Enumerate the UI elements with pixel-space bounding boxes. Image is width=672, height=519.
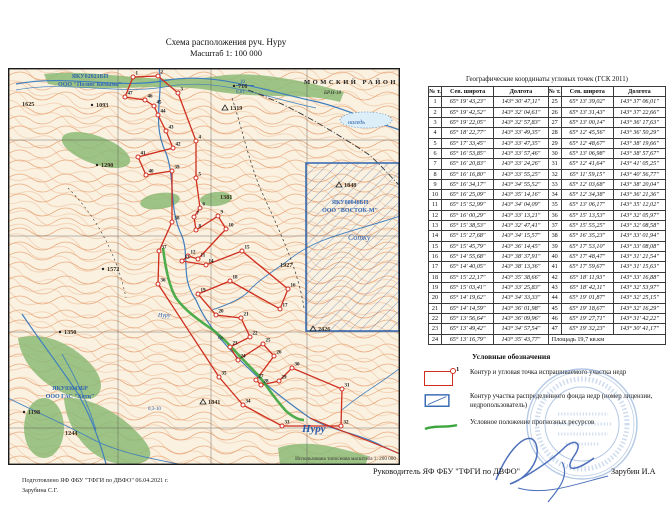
map-corner-point (239, 316, 243, 320)
latitude-cell: 65° 15' 22,17" (442, 272, 494, 282)
point-number-cell: 38 (548, 231, 561, 241)
map-corner-point-number: 14 (209, 260, 215, 265)
scale-label: Масштаб 1: 100 000 (96, 48, 356, 59)
map-corner-point (131, 75, 135, 79)
latitude-cell: 65° 12' 41,64" (561, 159, 613, 169)
elevation-label: 1927 (280, 262, 292, 269)
col-longitude: Долгота (613, 87, 665, 97)
latitude-cell: 65° 15' 38,53" (442, 221, 494, 231)
map-corner-point-number: 46 (148, 95, 154, 100)
elevation-label: 1198 (28, 409, 40, 416)
map-corner-point (241, 403, 245, 407)
map-corner-point (286, 287, 290, 291)
point-number-cell: 21 (429, 303, 442, 313)
longitude-cell: 143° 40' 56,77" (613, 169, 665, 179)
longitude-cell: 143° 36' 14,45" (494, 241, 549, 251)
license-number-label: ЯКУ02021БП (72, 74, 109, 80)
map-corner-point (259, 383, 263, 387)
table-row: 2465° 13' 16,79"143° 35' 43,77"Площадь 1… (429, 334, 666, 344)
map-corner-point-number: 13 (185, 256, 191, 261)
table-row: 665° 16' 53,85"143° 33' 57,46"3065° 13' … (429, 148, 666, 158)
elevation-dot-icon (91, 104, 93, 106)
approver-name: Зарубин И.А (611, 467, 656, 476)
latitude-cell: 65° 19' 42,52" (442, 107, 494, 117)
map-corner-point (194, 228, 198, 232)
point-number-cell: 28 (548, 128, 561, 138)
elevation-label: 1093 (96, 102, 108, 109)
longitude-cell: 143° 34' 33,33" (494, 293, 549, 303)
point-number-cell: 7 (429, 159, 442, 169)
point-number-cell: 18 (429, 272, 442, 282)
table-row: 165° 19' 43,23"143° 30' 47,11"2565° 13' … (429, 97, 666, 107)
latitude-cell: 65° 16' 34,17" (442, 179, 494, 189)
point-number-cell: 37 (548, 221, 561, 231)
longitude-cell: 143° 33' 01,94" (613, 231, 665, 241)
latitude-cell: 65° 16' 00,29" (442, 210, 494, 220)
point-number-cell: 31 (548, 159, 561, 169)
approver-title: Руководитель ЯФ ФБУ "ТФГИ по ДВФО" (373, 467, 520, 476)
map-corner-point (339, 424, 343, 428)
latitude-cell: 65° 15' 03,41" (442, 282, 494, 292)
map-label: БР.Н-18 (323, 91, 342, 96)
map-label: наледь (348, 119, 365, 126)
latitude-cell: 65° 14' 19,62" (442, 293, 494, 303)
point-number-cell: 8 (429, 169, 442, 179)
map-corner-point-number: 19 (201, 289, 207, 294)
map-corner-point-number: 16 (291, 284, 297, 289)
table-row: 1465° 15' 27,68"143° 34' 15,57"3865° 16'… (429, 231, 666, 241)
table-row: 265° 19' 42,52"143° 32' 04,61"2665° 13' … (429, 107, 666, 117)
point-number-cell: 1 (429, 97, 442, 107)
elevation-label: 1572 (107, 266, 119, 273)
map-corner-point (278, 307, 282, 311)
map-corner-point-number: 11 (201, 254, 206, 259)
col-point-number: № т. (429, 87, 442, 97)
page-title: Схема расположения руч. Нуру Масштаб 1: … (96, 36, 356, 60)
longitude-cell: 143° 32' 57,83" (494, 117, 549, 127)
elevation-dot-icon (233, 85, 235, 87)
legend-point-number: 1 (456, 366, 459, 373)
coordinates-table-block: Географические координаты угловых точек … (428, 76, 666, 345)
table-row: 2365° 13' 49,42"143° 34' 57,54"4765° 19'… (429, 324, 666, 334)
latitude-cell: 65° 19' 18,67" (561, 303, 613, 313)
map-corner-point (248, 335, 252, 339)
col-latitude: Сев. широта (561, 87, 613, 97)
latitude-cell: 65° 17' 53,10" (561, 241, 613, 251)
map-corner-point-number: 41 (141, 152, 147, 157)
longitude-cell: 143° 36' 50,29" (613, 128, 665, 138)
elevation-dot-icon (96, 164, 98, 166)
map-corner-point (198, 206, 202, 210)
point-number-cell: 39 (548, 241, 561, 251)
longitude-cell: 143° 32' 05,97" (613, 210, 665, 220)
topographic-map: 1234567891011121314151617181920212223242… (8, 68, 400, 465)
map-corner-point-number: 34 (246, 400, 252, 405)
elevation-dot-icon (23, 411, 25, 413)
map-label: Нуру (157, 313, 171, 319)
longitude-cell: 143° 35' 43,77" (494, 334, 549, 344)
latitude-cell: 65° 16' 20,83" (442, 159, 494, 169)
longitude-cell: 143° 32' 53,97" (613, 282, 665, 292)
latitude-cell: 65° 17' 33,45" (442, 138, 494, 148)
latitude-cell: 65° 12' 45,56" (561, 128, 613, 138)
point-number-cell: 9 (429, 179, 442, 189)
latitude-cell: 65° 18' 11,93" (561, 272, 613, 282)
latitude-cell: 65° 12' 48,67" (561, 138, 613, 148)
table-row: 1265° 16' 00,29"143° 33' 13,21"3665° 15'… (429, 210, 666, 220)
map-corner-point (156, 74, 160, 78)
point-number-cell: 45 (548, 303, 561, 313)
table-row: 565° 17' 33,45"143° 33' 47,35"2965° 12' … (429, 138, 666, 148)
latitude-cell: 65° 17' 59,67" (561, 262, 613, 272)
map-corner-point (180, 259, 184, 263)
latitude-cell: 65° 19' 22,05" (442, 117, 494, 127)
map-corner-point (143, 98, 147, 102)
longitude-cell: 143° 34' 15,57" (494, 231, 549, 241)
map-corner-point-number: 38 (175, 217, 181, 222)
longitude-cell: 143° 38' 37,91" (494, 252, 549, 262)
map-corner-point (170, 220, 174, 224)
latitude-cell: 65° 15' 52,99" (442, 200, 494, 210)
point-number-cell: 10 (429, 190, 442, 200)
latitude-cell: 65° 11' 59,15" (561, 169, 613, 179)
map-corner-point-number: 33 (285, 421, 291, 426)
map-label: 0,8Т (236, 90, 245, 95)
map-corner-point-number: 21 (244, 313, 250, 318)
map-corner-point (156, 282, 160, 286)
latitude-cell: 65° 12' 03,68" (561, 179, 613, 189)
map-corner-point (214, 313, 218, 317)
license-holder-label: ООО ГАС "Хотц" (46, 394, 95, 400)
table-title: Географические координаты угловых точек … (428, 76, 666, 83)
map-corner-point (152, 104, 156, 108)
point-number-cell: 33 (548, 179, 561, 189)
latitude-cell: 65° 13' 06,17" (561, 200, 613, 210)
map-corner-point (280, 424, 284, 428)
longitude-cell: 143° 38' 19,66" (613, 138, 665, 148)
map-corner-point (290, 366, 294, 370)
latitude-cell: 65° 15' 13,53" (561, 210, 613, 220)
map-corner-point-number: 17 (283, 304, 289, 309)
point-number-cell: 29 (548, 138, 561, 148)
table-row: 865° 16' 16,80"143° 33' 55,25"3265° 11' … (429, 169, 666, 179)
point-number-cell: 22 (429, 313, 442, 323)
map-corner-point (277, 379, 281, 383)
table-row: 2065° 14' 19,62"143° 34' 33,33"4465° 19'… (429, 293, 666, 303)
latitude-cell: 65° 13' 00,14" (561, 117, 613, 127)
latitude-cell: 65° 13' 16,79" (442, 334, 494, 344)
license-number-label: ЯКУ03043БР (52, 386, 88, 392)
point-number-cell: 40 (548, 252, 561, 262)
point-number-cell: 32 (548, 169, 561, 179)
map-corner-point-number: 28 (264, 380, 270, 385)
point-number-cell: 20 (429, 293, 442, 303)
map-corner-point-number: 15 (245, 246, 251, 251)
longitude-cell: 143° 33' 08,08" (613, 241, 665, 251)
longitude-cell: 143° 34' 04,09" (494, 200, 549, 210)
point-number-cell: 44 (548, 293, 561, 303)
latitude-cell: 65° 16' 53,85" (442, 148, 494, 158)
table-row: 2265° 13' 56,64"143° 36' 09,96"4665° 19'… (429, 313, 666, 323)
map-corner-point (164, 129, 168, 133)
map-corner-point (144, 173, 148, 177)
point-number-cell: 41 (548, 262, 561, 272)
latitude-cell: 65° 15' 45,79" (442, 241, 494, 251)
point-number-cell: 30 (548, 148, 561, 158)
col-point-number: № т. (548, 87, 561, 97)
table-row: 1065° 16' 25,09"143° 35' 14,16"3465° 12'… (429, 190, 666, 200)
table-row: 1565° 15' 45,79"143° 36' 14,45"3965° 17'… (429, 241, 666, 251)
map-corner-point-number: 42 (176, 143, 182, 148)
map-corner-point-number: 44 (161, 110, 167, 115)
map-corner-point-number: 10 (229, 224, 235, 229)
map-corner-point-number: 20 (219, 310, 225, 315)
longitude-cell: 143° 38' 57,67" (613, 148, 665, 158)
elevation-label: 1381 (220, 194, 232, 201)
elevation-label: 1244 (65, 430, 77, 437)
elevation-dot-icon (102, 268, 104, 270)
blue-contour-icon (424, 393, 460, 409)
map-corner-point-number: 23 (233, 342, 239, 347)
map-corner-point (194, 176, 198, 180)
map-corner-point (236, 358, 240, 362)
point-number-cell: 4 (429, 128, 442, 138)
latitude-cell: 65° 19' 43,23" (442, 97, 494, 107)
point-number-cell: 24 (429, 334, 442, 344)
map-corner-point-number: 12 (191, 251, 197, 256)
table-row: 2165° 14' 14,59"143° 36' 01,98"4565° 19'… (429, 303, 666, 313)
col-longitude: Долгота (494, 87, 549, 97)
point-number-cell: 27 (548, 117, 561, 127)
point-number-cell: 36 (548, 210, 561, 220)
point-number-cell: 2 (429, 107, 442, 117)
point-number-cell: 35 (548, 200, 561, 210)
longitude-cell: 143° 35' 38,66" (494, 272, 549, 282)
map-corner-point (176, 91, 180, 95)
map-corner-point (216, 214, 220, 218)
map-corner-point (272, 354, 276, 358)
table-row: 1165° 15' 52,99"143° 34' 04,09"3565° 13'… (429, 200, 666, 210)
longitude-cell: 143° 37' 06,01" (613, 97, 665, 107)
longitude-cell: 143° 32' 47,41" (494, 221, 549, 231)
point-number-cell: 23 (429, 324, 442, 334)
map-corner-point (192, 215, 196, 219)
map-corner-point-number: 45 (157, 101, 163, 106)
latitude-cell: 65° 13' 06,98" (561, 148, 613, 158)
map-corner-point (194, 139, 198, 143)
coordinates-table: № т. Сев. широта Долгота № т. Сев. широт… (428, 86, 666, 345)
longitude-cell: 143° 33' 25,83" (494, 282, 549, 292)
map-corner-point-number: 40 (149, 170, 155, 175)
longitude-cell: 143° 30' 47,11" (494, 97, 549, 107)
map-corner-point (196, 257, 200, 261)
map-source-note: Использована топоснова масштаба 1: 200 0… (295, 455, 396, 462)
map-corner-point (224, 227, 228, 231)
map-corner-point (261, 342, 265, 346)
table-row: 1865° 15' 22,17"143° 35' 38,66"4265° 18'… (429, 272, 666, 282)
elevation-label: 1319 (230, 105, 242, 112)
map-corner-point (228, 279, 232, 283)
map-corner-point-number: 24 (241, 355, 247, 360)
table-row: 1665° 14' 55,68"143° 38' 37,91"4065° 17'… (429, 252, 666, 262)
longitude-cell: 143° 32' 16,29" (613, 303, 665, 313)
map-corner-point (228, 345, 232, 349)
elevation-label: 1841 (208, 399, 220, 406)
point-number-cell: 26 (548, 107, 561, 117)
table-row: 465° 18' 22,77"143° 33' 49,35"2865° 12' … (429, 128, 666, 138)
map-corner-point-number: 43 (169, 126, 175, 131)
latitude-cell: 65° 18' 42,11" (561, 282, 613, 292)
prepared-by-block: Подготовлено ЯФ ФБУ "ТФГИ по ДВФО" 06.04… (22, 476, 168, 495)
map-corner-point-number: 39 (175, 166, 181, 171)
elevation-label: 1290 (101, 162, 113, 169)
longitude-cell: 143° 33' 55,25" (494, 169, 549, 179)
latitude-cell: 65° 13' 56,64" (442, 313, 494, 323)
license-holder-label: ООО "Полюс Колыма" (58, 82, 122, 88)
point-number-cell: 6 (429, 148, 442, 158)
map-corner-point (123, 95, 127, 99)
map-corner-point (156, 113, 160, 117)
longitude-cell: 143° 38' 13,36" (494, 262, 549, 272)
longitude-cell: 143° 36' 17,63" (613, 117, 665, 127)
elevation-label: 1625 (22, 101, 34, 108)
table-row: 1965° 15' 03,41"143° 33' 25,83"4365° 18'… (429, 282, 666, 292)
point-number-cell: 14 (429, 231, 442, 241)
map-corner-point-number: 22 (253, 332, 259, 337)
map-corner-point (170, 169, 174, 173)
latitude-cell: 65° 15' 55,25" (561, 221, 613, 231)
map-corner-point-number: 30 (295, 363, 301, 368)
longitude-cell: 143° 36' 21,36" (613, 190, 665, 200)
point-number-cell: 42 (548, 272, 561, 282)
map-label: 10 (240, 80, 246, 85)
longitude-cell: 143° 32' 25,15" (613, 293, 665, 303)
table-row: 1765° 14' 40,05"143° 38' 13,36"4165° 17'… (429, 262, 666, 272)
point-number-cell: 17 (429, 262, 442, 272)
latitude-cell: 65° 14' 40,05" (442, 262, 494, 272)
point-number-cell: 11 (429, 200, 442, 210)
scheme-title: Схема расположения руч. Нуру (96, 36, 356, 48)
elevation-label: 1848 (344, 182, 356, 189)
latitude-cell: 65° 16' 25,09" (442, 190, 494, 200)
latitude-cell: 65° 14' 14,59" (442, 303, 494, 313)
longitude-cell: 143° 33' 24,26" (494, 159, 549, 169)
latitude-cell: 65° 19' 32,23" (561, 324, 613, 334)
point-number-cell: 34 (548, 190, 561, 200)
map-label: Сотку (348, 233, 371, 242)
longitude-cell: 143° 31' 15,63" (613, 262, 665, 272)
map-corner-point-number: 25 (266, 339, 272, 344)
longitude-cell: 143° 36' 09,96" (494, 313, 549, 323)
point-number-cell: 5 (429, 138, 442, 148)
map-label: МОМСКИЙ РАЙОН (304, 78, 398, 86)
point-number-cell: 3 (429, 117, 442, 127)
longitude-cell: 143° 33' 47,35" (494, 138, 549, 148)
longitude-cell: 143° 31' 21,54" (613, 252, 665, 262)
map-corner-point (340, 387, 344, 391)
elevation-label: 1350 (64, 329, 76, 336)
map-corner-point-number: 36 (161, 279, 167, 284)
longitude-cell: 143° 35' 14,16" (494, 190, 549, 200)
longitude-cell: 143° 31' 42,22" (613, 313, 665, 323)
longitude-cell: 143° 34' 55,52" (494, 179, 549, 189)
point-number-cell: 13 (429, 221, 442, 231)
longitude-cell: 143° 32' 04,61" (494, 107, 549, 117)
map-corner-point-number: 32 (344, 421, 350, 426)
prepared-by-line2: Зарубина С.Г. (22, 486, 168, 496)
longitude-cell: 143° 33' 57,46" (494, 148, 549, 158)
longitude-cell: 143° 33' 16,88" (613, 272, 665, 282)
table-row: 765° 16' 20,83"143° 33' 24,26"3165° 12' … (429, 159, 666, 169)
map-label: Нуру (301, 423, 326, 435)
longitude-cell: 143° 37' 22,66" (613, 107, 665, 117)
prepared-by-line1: Подготовлено ЯФ ФБУ "ТФГИ по ДВФО" 06.04… (22, 476, 168, 486)
latitude-cell: 65° 14' 55,68" (442, 252, 494, 262)
map-corner-point-number: 29 (282, 376, 288, 381)
point-number-cell: 19 (429, 282, 442, 292)
point-number-cell: 16 (429, 252, 442, 262)
map-corner-point-number: 35 (222, 372, 228, 377)
longitude-cell: 143° 32' 08,58" (613, 221, 665, 231)
table-row: 1365° 15' 38,53"143° 32' 47,41"3765° 15'… (429, 221, 666, 231)
latitude-cell: 65° 16' 35,23" (561, 231, 613, 241)
map-note-group: Использована топоснова масштаба 1: 200 0… (295, 455, 396, 462)
map-corner-point-number: 31 (345, 384, 351, 389)
longitude-cell: 143° 30' 41,17" (613, 324, 665, 334)
longitude-cell: 143° 33' 13,21" (494, 210, 549, 220)
green-line-icon (424, 419, 460, 435)
map-corner-point (254, 378, 258, 382)
latitude-cell: 65° 19' 01,87" (561, 293, 613, 303)
point-number-cell: 12 (429, 210, 442, 220)
area-cell: Площадь 19,7 кв.км (548, 334, 665, 344)
longitude-cell: 143° 35' 12,02" (613, 200, 665, 210)
elevation-label: 2426 (318, 326, 330, 333)
latitude-cell: 65° 17' 48,47" (561, 252, 613, 262)
license-number-label: ЯКУ00046БП (332, 200, 369, 206)
map-label: бр. (218, 336, 224, 341)
latitude-cell: 65° 13' 31,43" (561, 107, 613, 117)
latitude-cell: 65° 15' 27,68" (442, 231, 494, 241)
latitude-cell: 65° 19' 27,71" (561, 313, 613, 323)
map-corner-point-number: 47 (128, 92, 134, 97)
longitude-cell: 143° 34' 57,54" (494, 324, 549, 334)
map-corner-point (157, 249, 161, 253)
map-corner-point-number: 18 (233, 276, 239, 281)
latitude-cell: 65° 13' 49,42" (442, 324, 494, 334)
latitude-cell: 65° 12' 34,38" (561, 190, 613, 200)
table-row: 365° 19' 22,05"143° 32' 57,83"2765° 13' … (429, 117, 666, 127)
point-number-cell: 46 (548, 313, 561, 323)
document-page: Схема расположения руч. Нуру Масштаб 1: … (0, 0, 672, 519)
map-corner-point-number: 26 (277, 351, 283, 356)
map-corner-point (217, 375, 221, 379)
point-number-cell: 43 (548, 282, 561, 292)
map-label: 0,3-10 (148, 407, 161, 412)
latitude-cell: 65° 18' 22,77" (442, 128, 494, 138)
latitude-cell: 65° 13' 39,02" (561, 97, 613, 107)
longitude-cell: 143° 41' 05,25" (613, 159, 665, 169)
longitude-cell: 143° 36' 01,98" (494, 303, 549, 313)
map-corner-point-number: 37 (162, 246, 168, 251)
red-contour-icon: 1 (424, 369, 460, 385)
license-holder-label: ООО "ВОСТОК-М" (322, 208, 378, 214)
col-latitude: Сев. широта (442, 87, 494, 97)
map-corner-point (240, 249, 244, 253)
table-row: 965° 16' 34,17"143° 34' 55,52"3365° 12' … (429, 179, 666, 189)
point-number-cell: 25 (548, 97, 561, 107)
signature (466, 418, 661, 513)
